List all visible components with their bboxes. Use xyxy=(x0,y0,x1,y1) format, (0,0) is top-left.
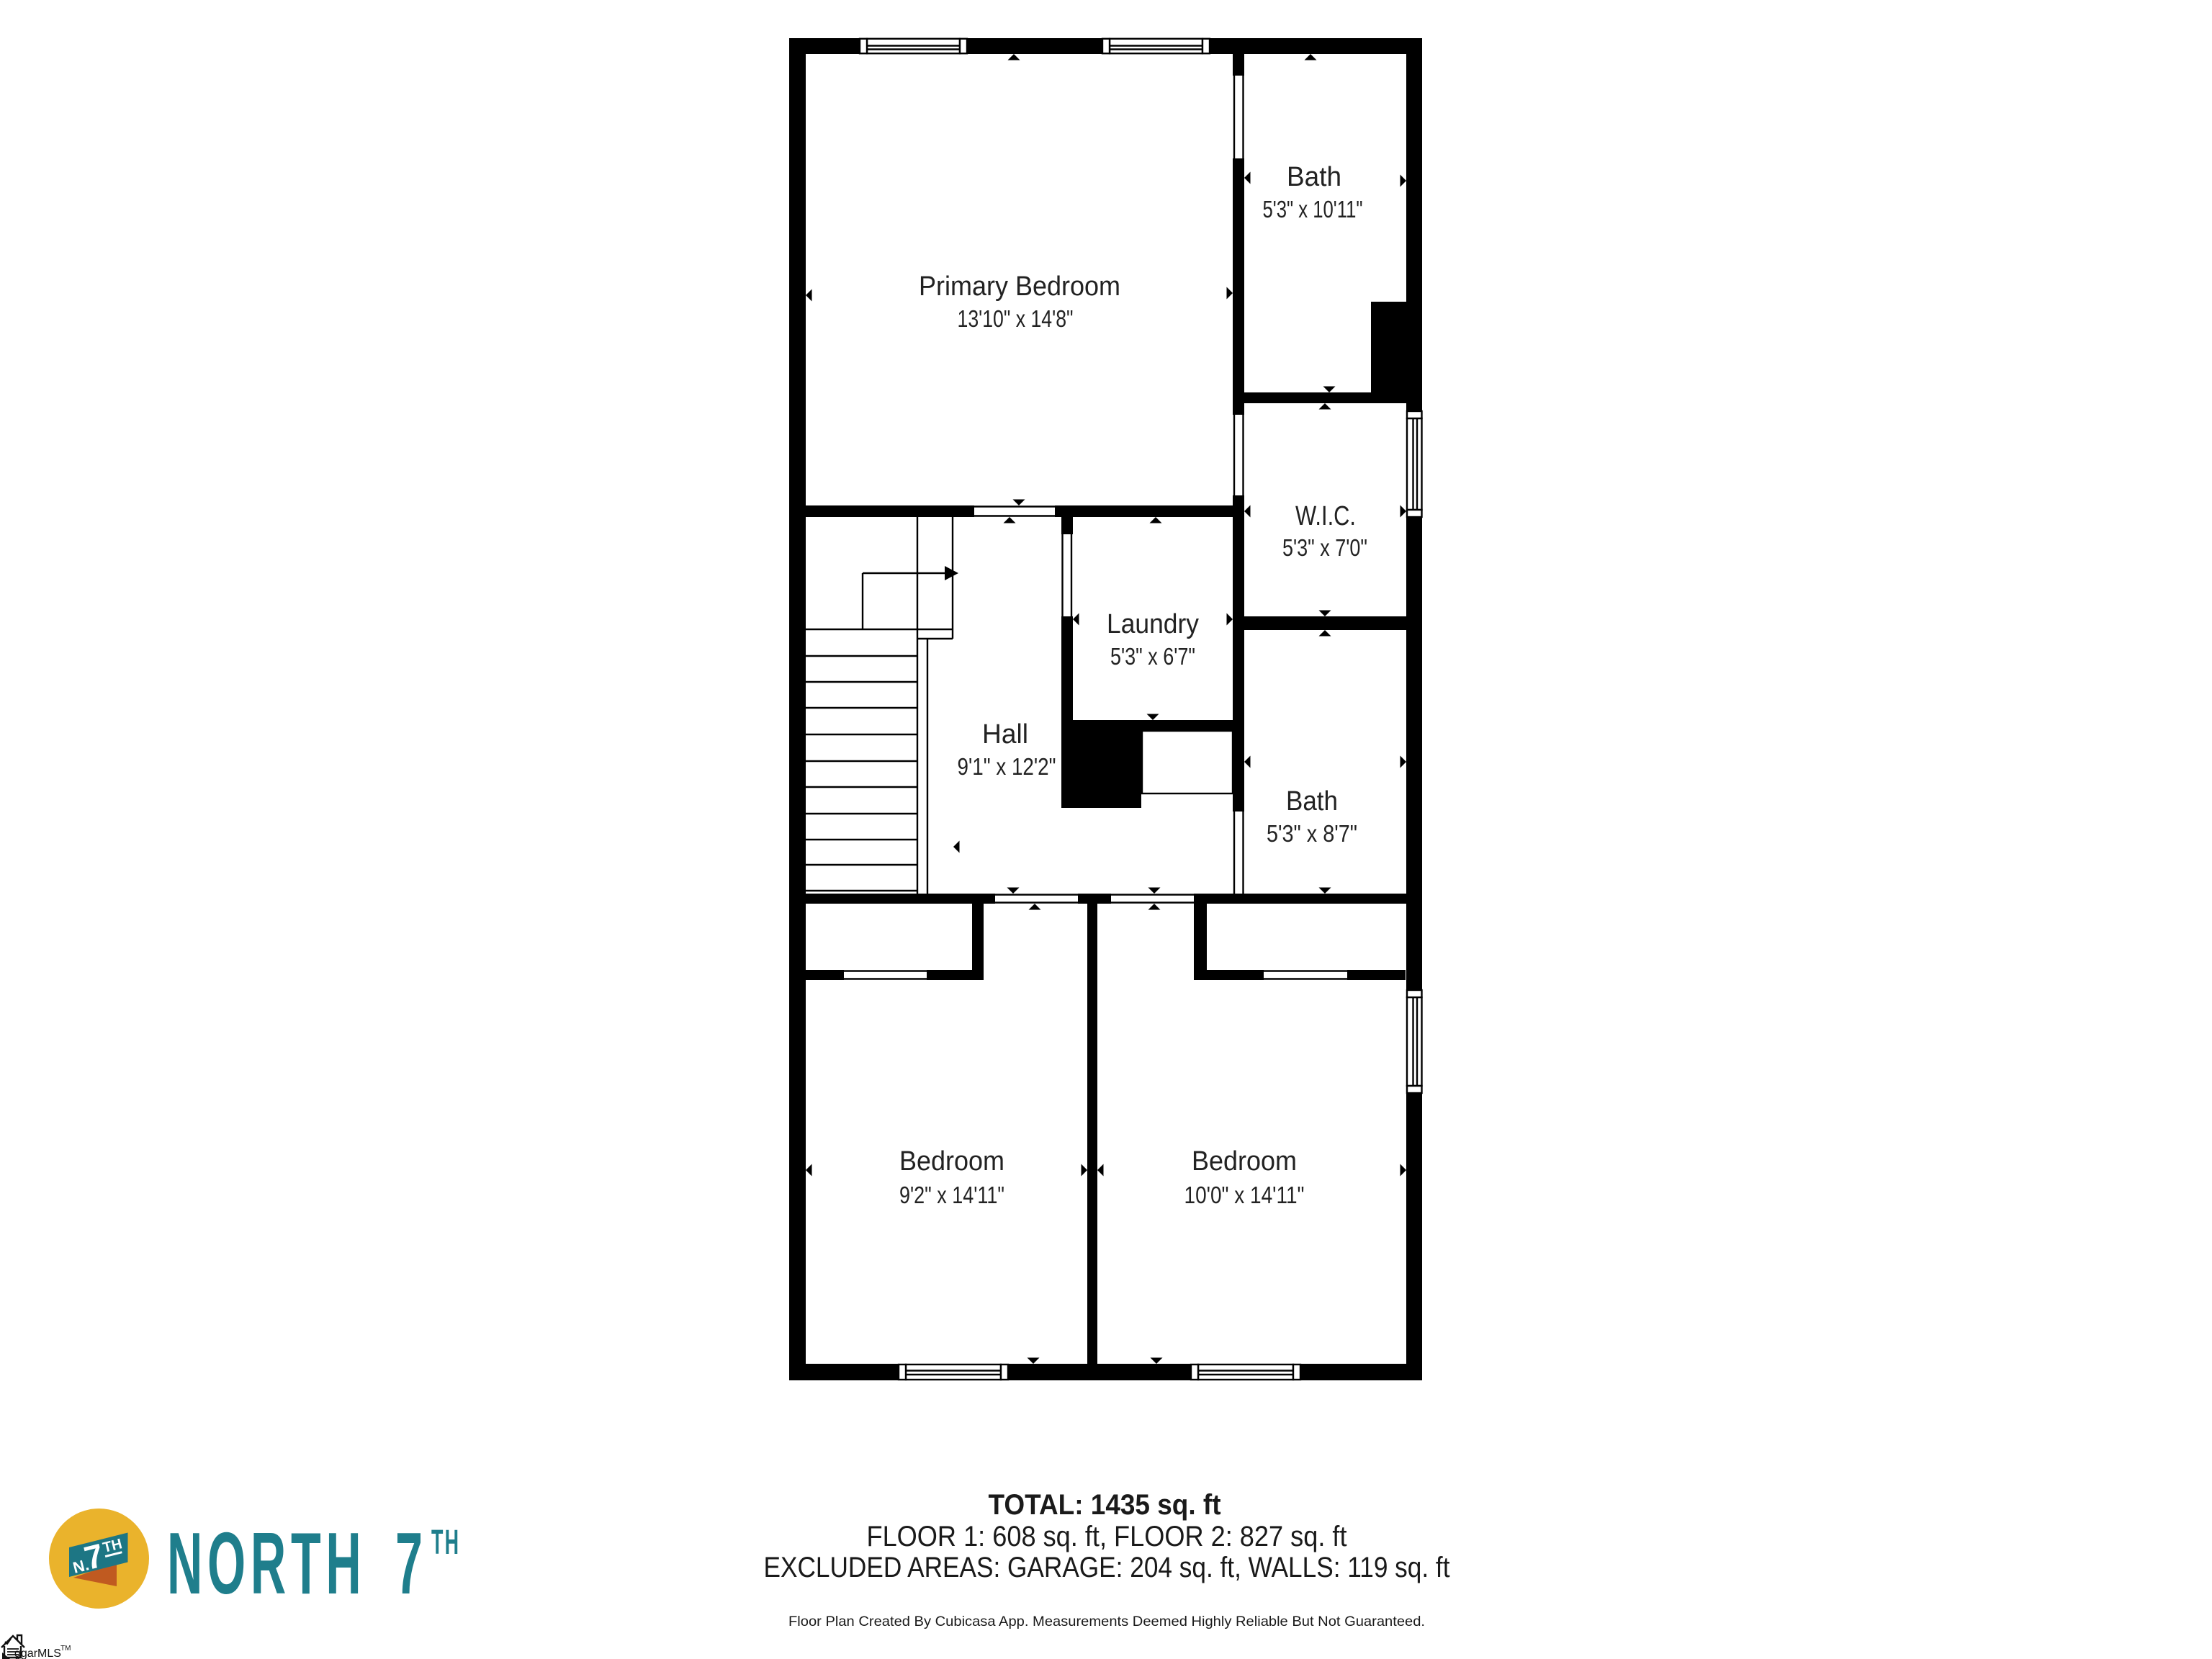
svg-text:Primary Bedroom: Primary Bedroom xyxy=(919,271,1120,302)
svg-text:5'3" x 8'7": 5'3" x 8'7" xyxy=(1267,820,1357,847)
svg-text:TH: TH xyxy=(431,1524,460,1562)
svg-text:Hall: Hall xyxy=(982,719,1028,750)
svg-text:Bath: Bath xyxy=(1286,786,1338,817)
svg-text:FLOOR 1: 608 sq. ft, FLOOR 2:: FLOOR 1: 608 sq. ft, FLOOR 2: 827 sq. ft xyxy=(867,1521,1347,1552)
svg-text:TOTAL: 1435 sq. ft: TOTAL: 1435 sq. ft xyxy=(989,1489,1221,1521)
svg-text:7: 7 xyxy=(395,1514,423,1612)
svg-text:EXCLUDED AREAS: GARAGE: 204 sq: EXCLUDED AREAS: GARAGE: 204 sq. ft, WALL… xyxy=(764,1552,1450,1583)
svg-text:Bedroom: Bedroom xyxy=(899,1146,1004,1177)
svg-text:9'1" x 12'2": 9'1" x 12'2" xyxy=(958,753,1056,780)
svg-text:ggarMLS: ggarMLS xyxy=(14,1647,61,1659)
svg-text:5'3" x 7'0": 5'3" x 7'0" xyxy=(1282,534,1367,561)
svg-text:Bath: Bath xyxy=(1287,162,1341,192)
svg-text:Floor Plan Created By Cubicasa: Floor Plan Created By Cubicasa App. Meas… xyxy=(788,1614,1425,1629)
svg-text:9'2" x 14'11": 9'2" x 14'11" xyxy=(899,1182,1004,1208)
svg-text:Laundry: Laundry xyxy=(1107,609,1199,639)
svg-text:13'10" x 14'8": 13'10" x 14'8" xyxy=(958,305,1074,332)
svg-text:Bedroom: Bedroom xyxy=(1192,1146,1297,1177)
svg-text:5'3" x 10'11": 5'3" x 10'11" xyxy=(1263,196,1363,222)
svg-text:NORTH: NORTH xyxy=(167,1514,366,1612)
svg-text:W.I.C.: W.I.C. xyxy=(1295,501,1356,531)
svg-text:10'0" x 14'11": 10'0" x 14'11" xyxy=(1184,1182,1305,1208)
svg-text:TM: TM xyxy=(60,1645,71,1653)
svg-text:5'3" x 6'7": 5'3" x 6'7" xyxy=(1110,643,1195,670)
